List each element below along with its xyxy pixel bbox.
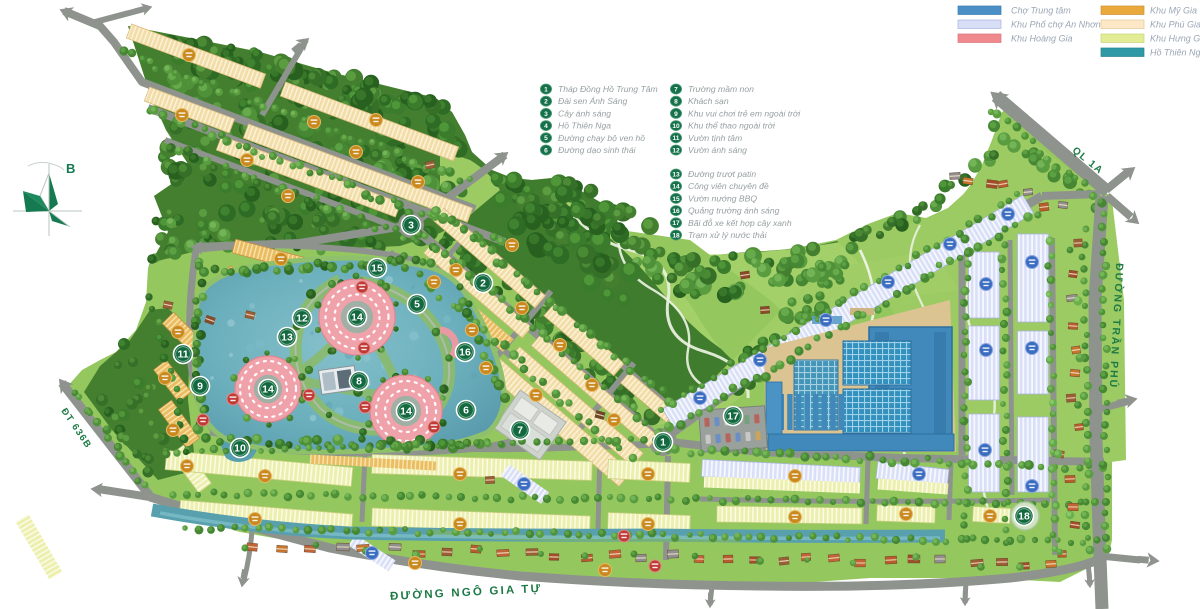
svg-text:9: 9	[674, 111, 678, 118]
svg-text:17: 17	[727, 411, 739, 423]
svg-text:Cây ánh sáng: Cây ánh sáng	[558, 108, 611, 118]
svg-text:Vườn ánh sáng: Vườn ánh sáng	[688, 145, 747, 155]
svg-text:15: 15	[672, 196, 680, 203]
svg-text:7: 7	[517, 425, 523, 437]
svg-text:Vườn tịnh tâm: Vườn tịnh tâm	[688, 133, 742, 143]
svg-text:Khu Hoàng Gia: Khu Hoàng Gia	[1011, 34, 1073, 44]
svg-text:16: 16	[459, 347, 471, 359]
svg-text:Khu Mỹ Gia: Khu Mỹ Gia	[1150, 6, 1197, 16]
svg-text:13: 13	[281, 332, 293, 344]
svg-text:3: 3	[544, 111, 548, 118]
svg-text:1: 1	[544, 86, 548, 93]
svg-text:B: B	[66, 161, 75, 176]
svg-text:Trạm xử lý nước thải: Trạm xử lý nước thải	[688, 230, 768, 240]
svg-text:6: 6	[463, 405, 469, 417]
svg-text:Khu Phú Gia: Khu Phú Gia	[1150, 20, 1200, 30]
svg-text:15: 15	[371, 263, 383, 275]
svg-text:Chợ Trung tâm: Chợ Trung tâm	[1011, 6, 1071, 16]
svg-text:14: 14	[351, 312, 363, 324]
svg-text:Bãi đỗ xe kết hợp cây xanh: Bãi đỗ xe kết hợp cây xanh	[688, 218, 792, 228]
svg-text:Khu vui chơi trẻ em ngoài trời: Khu vui chơi trẻ em ngoài trời	[688, 108, 801, 118]
svg-text:Khu thể thao ngoài trời: Khu thể thao ngoài trời	[688, 121, 776, 131]
svg-text:13: 13	[672, 171, 680, 178]
svg-text:18: 18	[1018, 511, 1030, 523]
svg-text:Hồ Thiên Nga: Hồ Thiên Nga	[1150, 48, 1200, 58]
svg-text:5: 5	[544, 135, 548, 142]
svg-text:14: 14	[672, 184, 680, 191]
svg-text:1: 1	[660, 437, 666, 449]
svg-text:17: 17	[672, 220, 680, 227]
svg-text:Tháp Đồng Hồ Trung Tâm: Tháp Đồng Hồ Trung Tâm	[558, 84, 658, 94]
svg-text:Vườn nướng BBQ: Vườn nướng BBQ	[688, 193, 757, 203]
svg-text:Khu Hưng Gia: Khu Hưng Gia	[1150, 34, 1200, 44]
svg-text:14: 14	[262, 384, 274, 396]
svg-text:11: 11	[177, 349, 188, 361]
svg-text:12: 12	[672, 147, 680, 154]
svg-text:16: 16	[672, 208, 680, 215]
svg-text:5: 5	[414, 299, 420, 311]
svg-text:Khu Phố chợ An Nhơn: Khu Phố chợ An Nhơn	[1011, 20, 1101, 30]
svg-text:14: 14	[400, 406, 412, 418]
svg-text:9: 9	[197, 381, 203, 393]
svg-text:Đài sen Ánh Sáng: Đài sen Ánh Sáng	[558, 96, 627, 106]
svg-text:8: 8	[674, 99, 678, 106]
svg-text:Đường trượt patin: Đường trượt patin	[688, 169, 756, 179]
svg-text:Đường chạy bộ ven hồ: Đường chạy bộ ven hồ	[558, 133, 645, 143]
svg-text:Trường mầm non: Trường mầm non	[688, 84, 754, 94]
svg-text:Công viên chuyên đề: Công viên chuyên đề	[688, 181, 769, 191]
svg-text:10: 10	[672, 123, 680, 130]
svg-text:18: 18	[672, 232, 680, 239]
svg-text:12: 12	[296, 313, 308, 325]
svg-text:2: 2	[544, 99, 548, 106]
svg-text:3: 3	[408, 220, 414, 232]
svg-text:Đường dạo sinh thái: Đường dạo sinh thái	[558, 145, 637, 155]
svg-text:8: 8	[356, 376, 362, 388]
svg-text:11: 11	[673, 135, 680, 142]
svg-text:2: 2	[480, 278, 486, 290]
svg-text:Hồ Thiên Nga: Hồ Thiên Nga	[558, 121, 611, 131]
svg-text:10: 10	[234, 443, 246, 455]
svg-text:4: 4	[544, 123, 548, 130]
svg-text:7: 7	[674, 86, 678, 93]
svg-text:6: 6	[544, 147, 548, 154]
svg-text:Quảng trường ánh sáng: Quảng trường ánh sáng	[688, 206, 780, 216]
svg-text:Khách sạn: Khách sạn	[688, 96, 729, 106]
